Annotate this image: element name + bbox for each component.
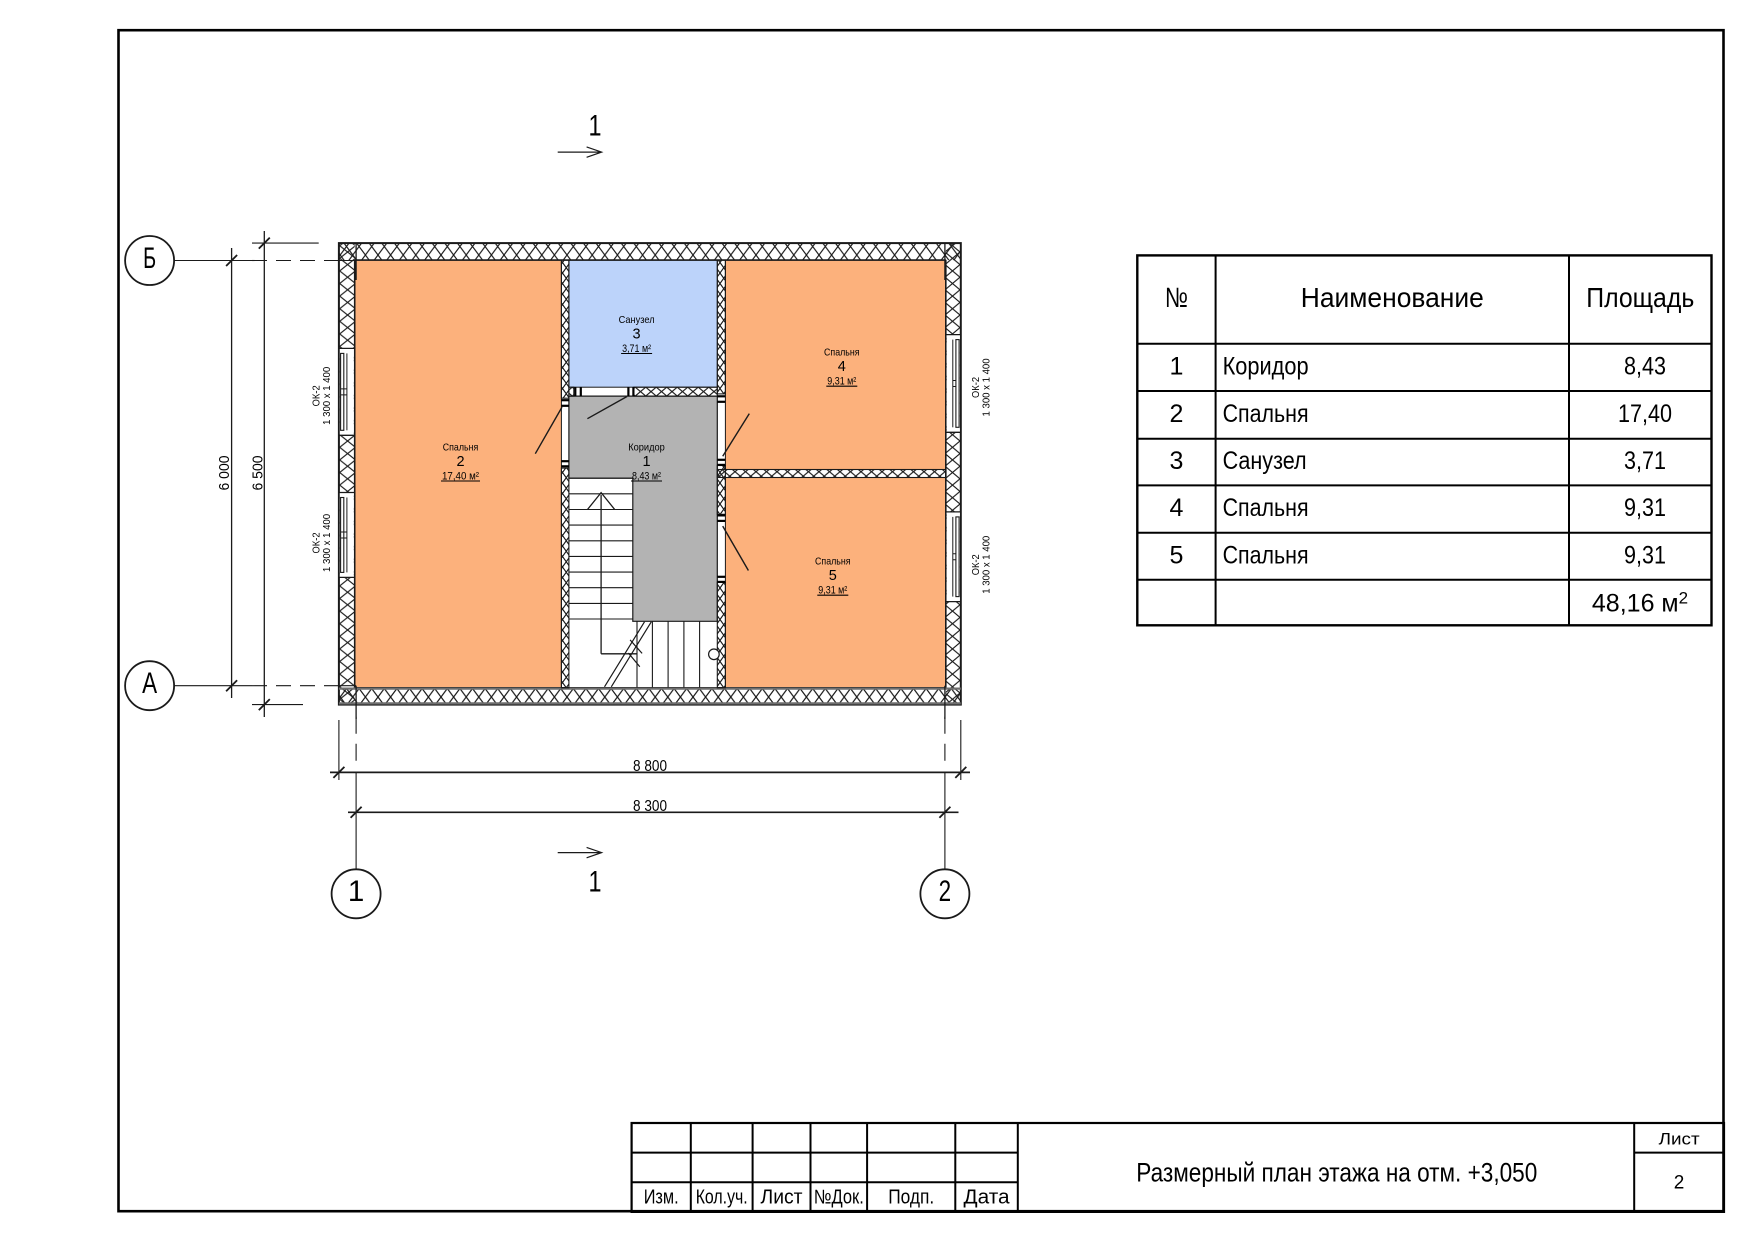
svg-text:№: №: [1165, 282, 1188, 313]
svg-text:2: 2: [1169, 400, 1183, 428]
svg-text:ОК-2: ОК-2: [971, 554, 982, 575]
svg-text:5: 5: [829, 568, 837, 584]
svg-text:1: 1: [642, 454, 650, 470]
svg-text:1 300 x 1 400: 1 300 x 1 400: [982, 535, 993, 593]
svg-text:Спальня: Спальня: [443, 441, 479, 453]
svg-text:4: 4: [1169, 494, 1183, 522]
svg-text:2: 2: [939, 875, 952, 908]
svg-text:17,40: 17,40: [1618, 400, 1672, 428]
svg-text:Наименование: Наименование: [1301, 282, 1484, 313]
svg-text:Санузел: Санузел: [1223, 447, 1307, 475]
svg-text:№Док.: №Док.: [814, 1187, 864, 1209]
svg-text:ОК-2: ОК-2: [971, 377, 982, 398]
svg-text:8,43: 8,43: [1624, 352, 1666, 380]
svg-text:3,71: 3,71: [1624, 447, 1666, 475]
svg-text:9,31: 9,31: [1624, 494, 1666, 522]
svg-text:Коридор: Коридор: [628, 441, 665, 453]
svg-text:3: 3: [1169, 447, 1183, 475]
svg-text:А: А: [142, 667, 157, 700]
svg-text:6 500: 6 500: [249, 456, 266, 491]
svg-text:Изм.: Изм.: [644, 1187, 679, 1209]
svg-text:Б: Б: [143, 242, 156, 275]
svg-text:1: 1: [348, 875, 364, 908]
svg-text:6 000: 6 000: [216, 456, 233, 491]
svg-text:5: 5: [1169, 541, 1183, 569]
svg-text:3: 3: [633, 327, 641, 343]
svg-text:1 300 x 1 400: 1 300 x 1 400: [322, 366, 333, 424]
svg-text:Спальня: Спальня: [1223, 494, 1309, 522]
svg-text:Дата: Дата: [964, 1187, 1011, 1209]
svg-text:8 300: 8 300: [633, 798, 667, 815]
svg-text:2: 2: [456, 454, 464, 470]
svg-text:Площадь: Площадь: [1586, 282, 1694, 313]
svg-text:Лист: Лист: [761, 1187, 803, 1209]
svg-text:1: 1: [1169, 352, 1183, 380]
svg-text:Кол.уч.: Кол.уч.: [696, 1187, 748, 1209]
svg-text:2: 2: [1674, 1173, 1685, 1194]
svg-text:Спальня: Спальня: [815, 556, 851, 568]
svg-text:Подп.: Подп.: [888, 1187, 934, 1209]
svg-text:Спальня: Спальня: [1223, 400, 1309, 428]
svg-text:Спальня: Спальня: [824, 347, 860, 359]
svg-text:Санузел: Санузел: [619, 314, 655, 326]
svg-text:Коридор: Коридор: [1223, 352, 1309, 380]
svg-text:48,16 м2: 48,16 м2: [1592, 589, 1688, 618]
svg-text:4: 4: [838, 359, 846, 375]
svg-text:Размерный план этажа на отм. +: Размерный план этажа на отм. +3,050: [1136, 1158, 1537, 1188]
svg-text:1 300 x 1 400: 1 300 x 1 400: [322, 514, 333, 572]
svg-text:1: 1: [589, 110, 602, 143]
svg-text:8 800: 8 800: [633, 758, 667, 775]
svg-text:1: 1: [589, 866, 602, 899]
svg-text:1 300 x 1 400: 1 300 x 1 400: [982, 358, 993, 416]
svg-text:Спальня: Спальня: [1223, 541, 1309, 569]
svg-text:Лист: Лист: [1659, 1129, 1700, 1148]
svg-text:9,31: 9,31: [1624, 541, 1666, 569]
